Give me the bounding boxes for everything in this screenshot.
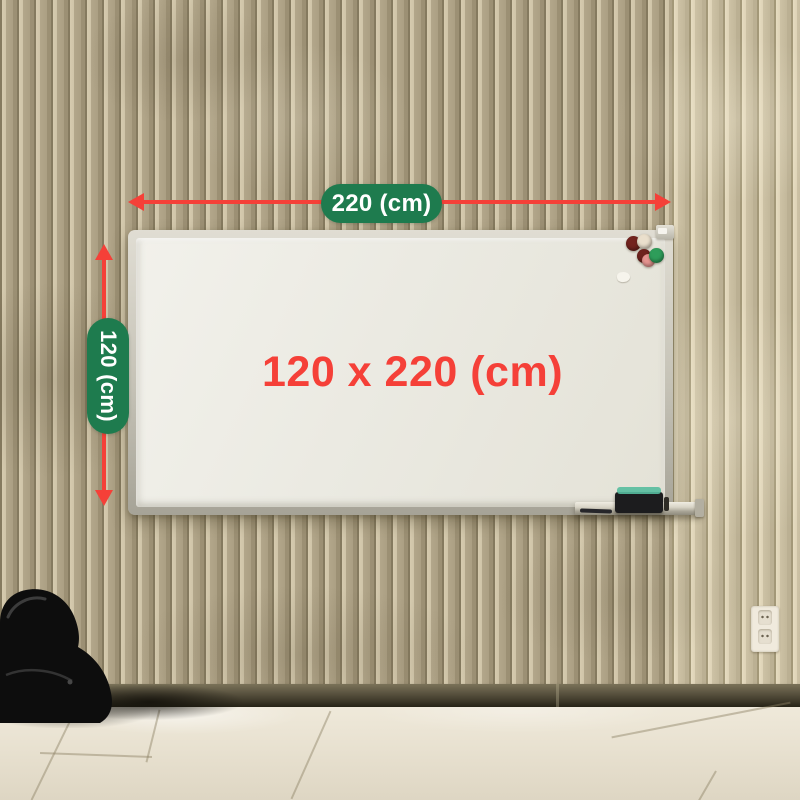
tray-clip (664, 497, 669, 511)
whiteboard: 120 x 220 (cm) (128, 230, 673, 515)
floor-tile-seam (40, 752, 152, 758)
eraser (615, 492, 663, 513)
magnet (649, 248, 664, 263)
height-dimension-label: 120 (cm) (95, 330, 121, 422)
baseboard-seam (556, 684, 559, 707)
width-dimension-pill: 220 (cm) (321, 184, 442, 223)
arrow-down-head-icon (95, 490, 113, 506)
outlet-socket (758, 610, 772, 625)
arrow-right-head-icon (655, 193, 671, 211)
product-photo-scene: 120 x 220 (cm) 220 (cm) 120 (cm) (0, 0, 800, 800)
outlet-socket (758, 629, 772, 644)
height-dimension-pill: 120 (cm) (87, 318, 129, 434)
width-dimension-label: 220 (cm) (332, 190, 432, 218)
floor-tile-seam (685, 771, 717, 800)
backpack (0, 583, 150, 723)
power-outlet (751, 606, 779, 652)
slatted-wall-right-section (672, 0, 800, 686)
board-dimension-label: 120 x 220 (cm) (128, 348, 673, 397)
eraser-felt (617, 487, 661, 494)
magnet (637, 234, 652, 249)
floor-tile-seam (611, 702, 790, 739)
mount-bracket (656, 225, 674, 239)
floor-tile-seam (291, 711, 332, 800)
